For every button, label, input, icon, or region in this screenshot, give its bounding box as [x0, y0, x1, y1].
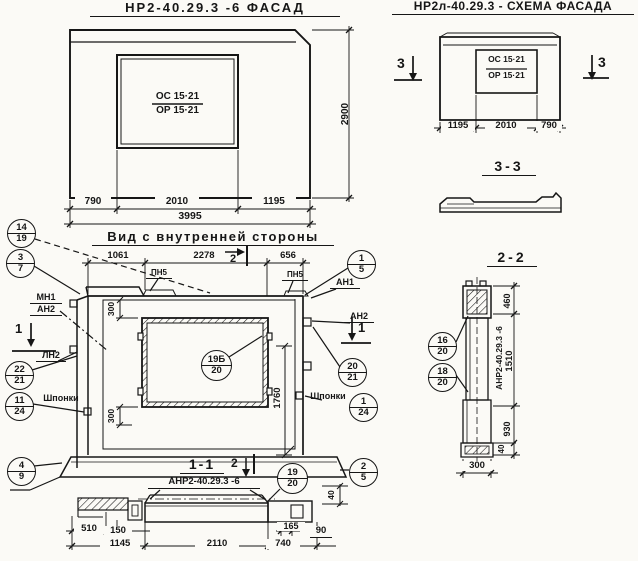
label-an2-left: АН2: [30, 305, 62, 316]
dim-2010: 2010: [155, 197, 199, 208]
dim-2900: 2900: [339, 96, 351, 132]
dim-1195: 1195: [252, 197, 296, 208]
facade-right-title: НР2л-40.29.3 - СХЕМА ФАСАДА: [392, 0, 634, 15]
dim-40-right: 40: [325, 484, 337, 506]
dim-656: 656: [272, 251, 304, 261]
facade-right-panel: [394, 33, 609, 133]
label-pn5-left: ПН5: [146, 269, 172, 279]
callout-22-21: 22 21: [5, 361, 34, 390]
section-2-2-title: 2-2: [487, 250, 537, 267]
dim-740: 740: [266, 539, 300, 549]
callout-3-7: 3 7: [6, 249, 35, 278]
section-3-3-profile: [440, 193, 561, 212]
dim-150: 150: [104, 526, 132, 536]
callout-14-19: 14 19: [7, 219, 36, 248]
callout-4-9: 4 9: [7, 457, 36, 486]
dim-300-bottom: 300: [105, 402, 117, 430]
dim-790: 790: [75, 197, 111, 208]
callout-1-5: 1 5: [347, 250, 376, 279]
dim-300-top: 300: [105, 295, 117, 323]
dim-165: 165: [277, 522, 305, 531]
section-3-mark-right: 3: [598, 54, 606, 70]
section-2-mark-top: 2: [230, 253, 236, 265]
label-shponki-right: Шпонки: [305, 392, 351, 401]
section-3-3-title: 3-3: [482, 159, 536, 176]
drawing-linework: [0, 0, 638, 561]
dim-510: 510: [74, 524, 104, 534]
facade-left-title: НР2-40.29.3 -6 ФАСАД: [90, 1, 340, 17]
dim-300-22: 300: [462, 461, 492, 471]
section-2-mark-bottom: 2: [231, 456, 238, 470]
section-1-1-title: 1-1: [180, 457, 224, 474]
window-mark-os-r: ОС 15·21: [478, 55, 535, 64]
callout-19b-20: 19Б 20: [201, 350, 232, 381]
dim-40-22: 40: [495, 439, 507, 459]
label-an2-right: АН2: [344, 312, 374, 323]
inner-view-title: Вид с внутренней стороны: [92, 230, 334, 246]
section-1-mark-left: 1: [15, 321, 22, 336]
callout-20-21: 20 21: [338, 358, 367, 387]
dim-1145: 1145: [100, 539, 140, 549]
dim-2278: 2278: [182, 251, 226, 261]
dim-90: 90: [310, 526, 332, 538]
dim-2010-r: 2010: [485, 121, 527, 131]
callout-11-24: 11 24: [5, 392, 34, 421]
callout-16-20: 16 20: [428, 332, 457, 361]
dim-1760: 1760: [271, 381, 283, 415]
callout-18-20: 18 20: [428, 363, 457, 392]
window-mark-or-r: ОР 15·21: [478, 71, 535, 80]
label-an1: АН1: [330, 278, 360, 289]
section-3-mark-left: 3: [397, 55, 405, 71]
dim-790-r: 790: [536, 121, 562, 131]
callout-1-24: 1 24: [349, 393, 378, 422]
window-mark-os: ОС 15·21: [140, 92, 215, 103]
dim-2110: 2110: [195, 539, 239, 549]
callout-2-5: 2 5: [349, 458, 378, 487]
dim-1061: 1061: [98, 251, 138, 261]
drawing-sheet: НР2-40.29.3 -6 ФАСАД НР2л-40.29.3 - СХЕМ…: [0, 0, 638, 561]
label-ln2: ЛН2: [36, 351, 66, 362]
dim-1195-r: 1195: [441, 121, 475, 131]
callout-19-20: 19 20: [277, 463, 308, 494]
label-shponki-left: Шпонки: [38, 394, 84, 403]
dim-1510: 1510: [503, 344, 515, 378]
dim-460: 460: [501, 287, 513, 315]
dim-3995: 3995: [168, 211, 212, 222]
section-1-1-label: АНР2-40.29.3 -6: [148, 477, 260, 489]
label-pn5-right: ПН5: [282, 271, 308, 281]
window-mark-or: ОР 15·21: [140, 106, 215, 117]
label-mn1: МН1: [30, 293, 62, 304]
inner-view-panel: [10, 239, 371, 490]
